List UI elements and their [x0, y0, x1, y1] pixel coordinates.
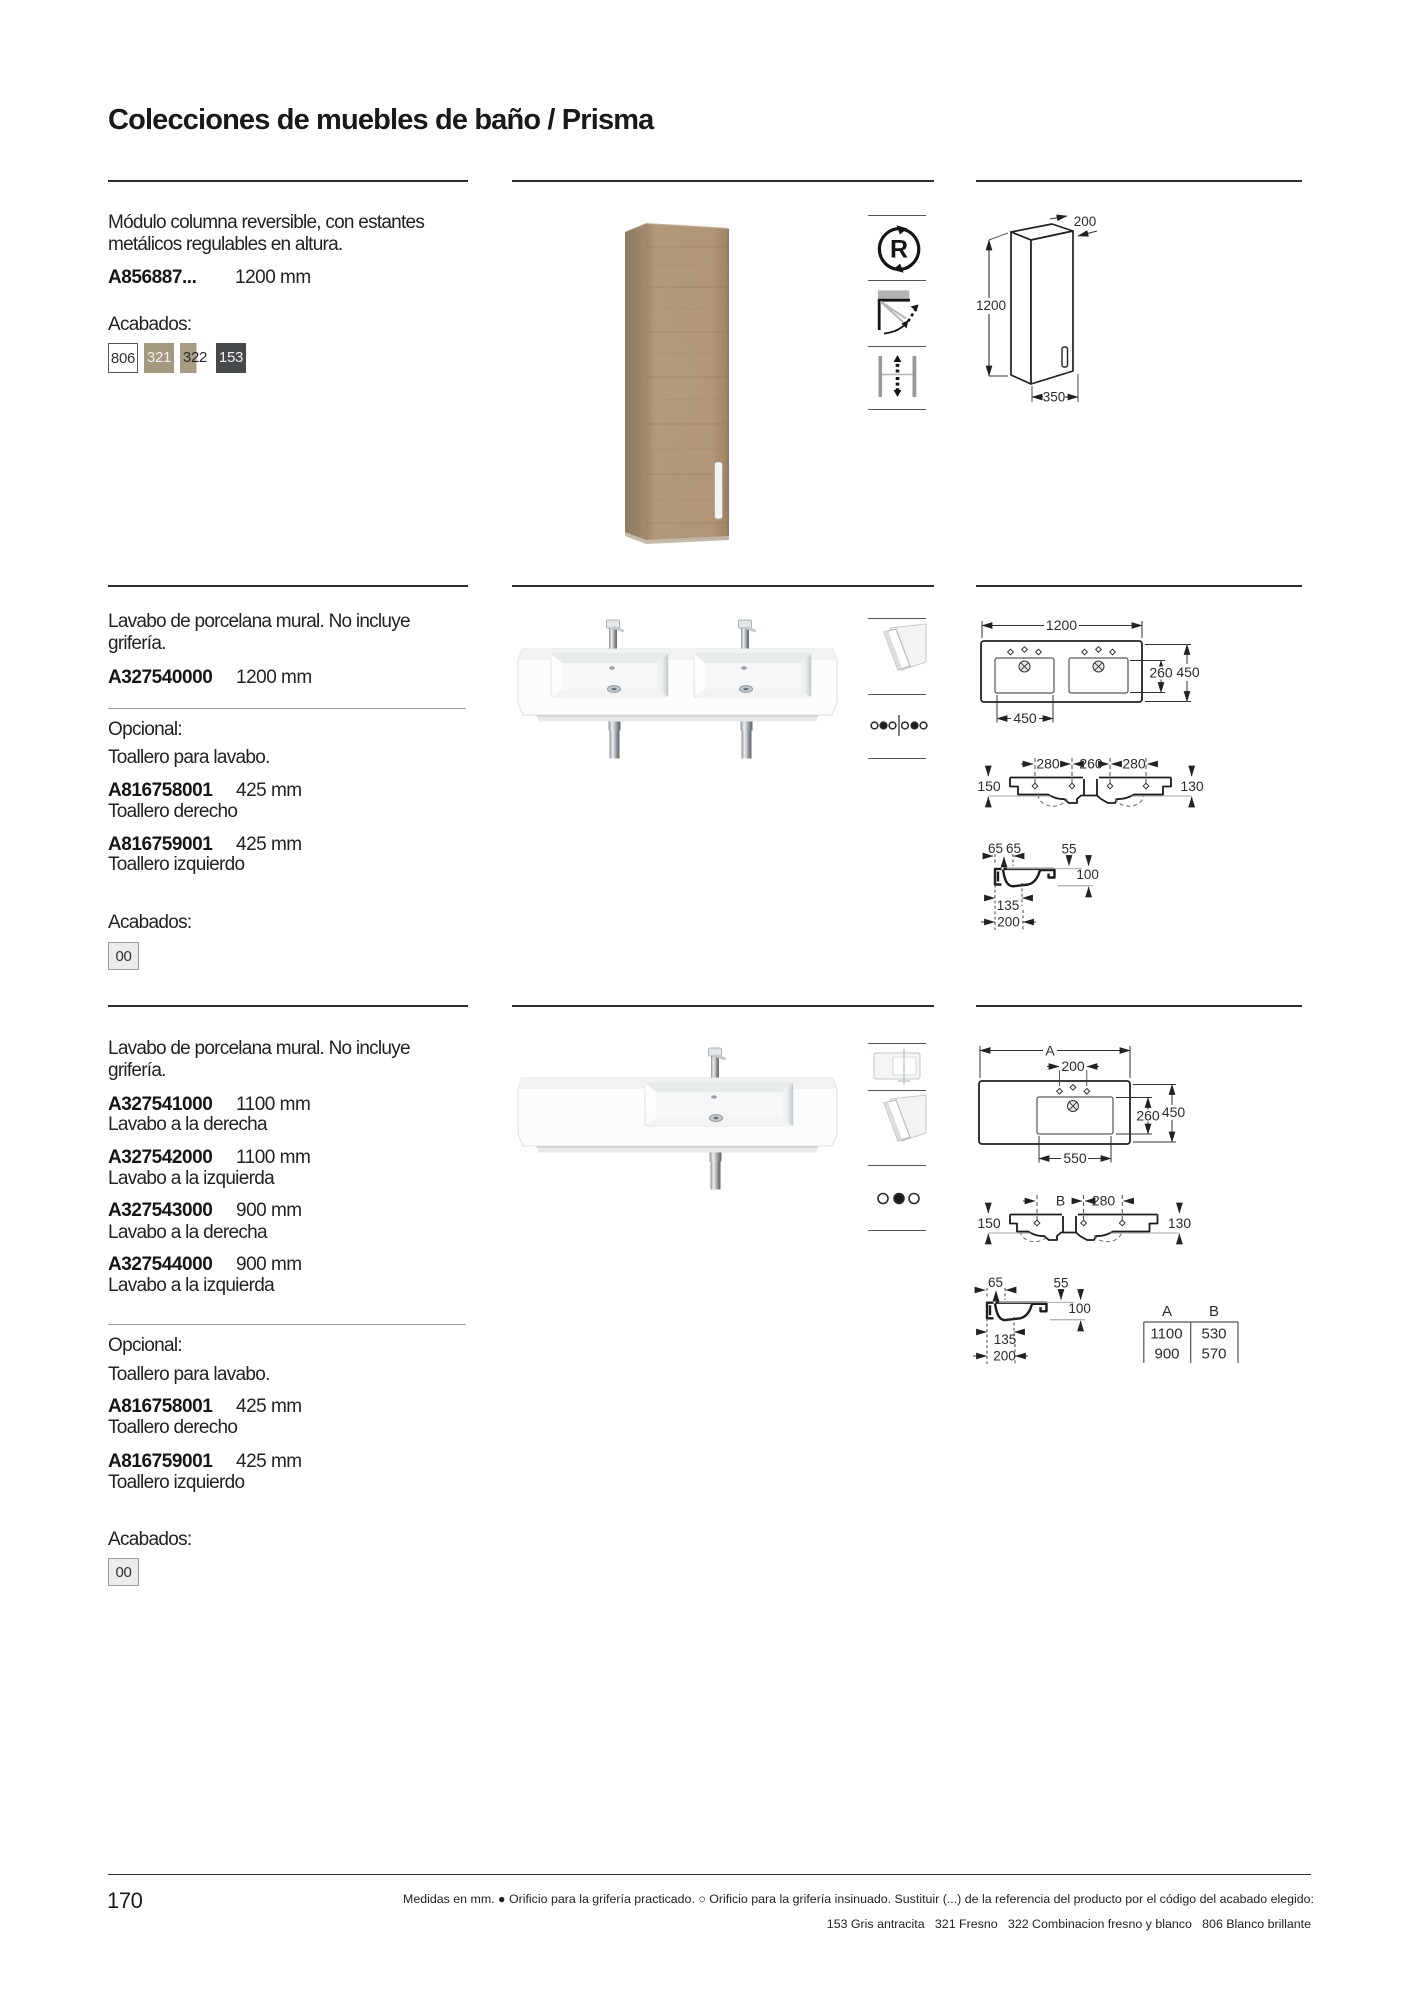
- svg-text:A: A: [1045, 1043, 1055, 1059]
- svg-text:260: 260: [1149, 665, 1173, 681]
- svg-text:1200: 1200: [976, 298, 1006, 313]
- svg-text:450: 450: [1013, 710, 1037, 726]
- svg-text:200: 200: [997, 915, 1020, 930]
- svg-text:350: 350: [1043, 390, 1066, 405]
- svg-text:450: 450: [1176, 664, 1200, 680]
- svg-text:1100: 1100: [1150, 1326, 1182, 1343]
- svg-text:450: 450: [1162, 1104, 1186, 1120]
- svg-text:A: A: [1162, 1303, 1172, 1320]
- svg-text:280: 280: [1122, 756, 1146, 772]
- svg-text:135: 135: [994, 1332, 1017, 1347]
- svg-text:200: 200: [1074, 214, 1097, 229]
- svg-text:280: 280: [1092, 1193, 1116, 1209]
- svg-text:135: 135: [997, 898, 1020, 913]
- svg-text:900: 900: [1154, 1346, 1179, 1363]
- svg-text:B: B: [1209, 1303, 1219, 1320]
- svg-text:65: 65: [988, 841, 1003, 856]
- svg-text:550: 550: [1063, 1150, 1087, 1166]
- svg-text:150: 150: [977, 1215, 1001, 1231]
- svg-text:200: 200: [993, 1349, 1016, 1364]
- svg-text:55: 55: [1061, 842, 1076, 857]
- svg-text:65: 65: [988, 1275, 1003, 1290]
- svg-text:200: 200: [1061, 1058, 1085, 1074]
- svg-text:530: 530: [1201, 1326, 1226, 1343]
- svg-text:130: 130: [1168, 1215, 1192, 1231]
- svg-text:260: 260: [1079, 756, 1103, 772]
- svg-text:130: 130: [1180, 778, 1204, 794]
- svg-text:100: 100: [1068, 1301, 1091, 1316]
- svg-text:260: 260: [1136, 1108, 1160, 1124]
- svg-text:1200: 1200: [1046, 617, 1077, 633]
- svg-text:B: B: [1056, 1193, 1065, 1209]
- svg-text:150: 150: [977, 778, 1001, 794]
- svg-text:280: 280: [1036, 756, 1060, 772]
- svg-text:570: 570: [1201, 1346, 1226, 1363]
- svg-text:55: 55: [1053, 1276, 1068, 1291]
- svg-text:65: 65: [1006, 841, 1021, 856]
- svg-text:100: 100: [1076, 867, 1099, 882]
- svg-text:R: R: [890, 236, 908, 264]
